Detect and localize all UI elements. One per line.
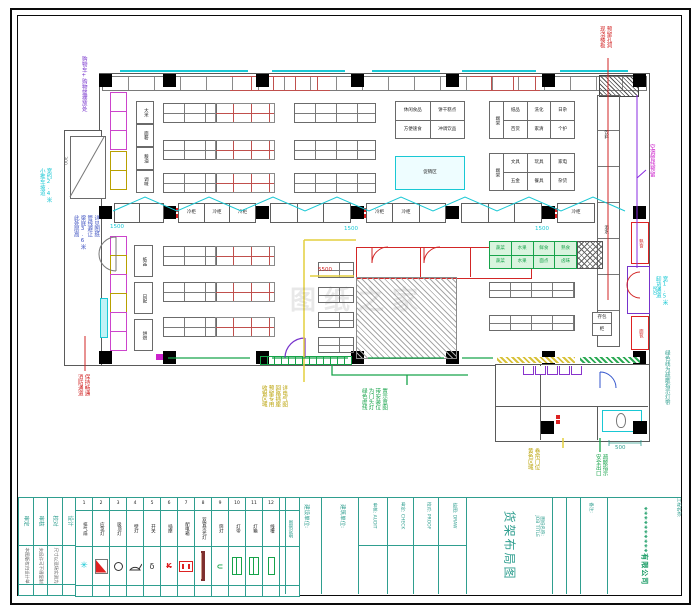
approval-label: 审核 [37, 516, 43, 527]
legend-name: 灯箱 [252, 524, 257, 533]
annotation-col: 收银区域 [260, 385, 266, 407]
annotation-cashier: 收银区域 预留专用 回路插座 详电气图 [260, 385, 286, 407]
dim-text: 1500 [535, 226, 549, 232]
titleblock-col: 建筑单位: [321, 497, 359, 594]
legend-name: 插座 [167, 524, 172, 533]
titleblock-divider [566, 497, 567, 594]
annotation-col: 消防通道 [76, 374, 82, 396]
annotation-ac: 空调管线预留 [648, 144, 654, 177]
legend-name: 开关 [150, 524, 155, 533]
annotation-col: 卸货通道 [654, 276, 660, 305]
annotation-col: 详电气图 [280, 385, 286, 407]
legend-index: 8 [202, 501, 205, 506]
purple-door-swing [285, 338, 305, 358]
annotation-ramp: 小推车坡道 宽约2.4米 [38, 168, 51, 203]
red-leader-lines [85, 58, 608, 371]
annotation-col: 置示意图 [380, 388, 386, 410]
annotation-col: 黄色区域 [526, 448, 532, 470]
jobtitle-label-cn: 图纸名称: [539, 516, 544, 536]
titleblock-company: **********有限公司 [607, 497, 681, 594]
watermark: 图纸之家 [290, 280, 510, 317]
drawing-sheet: 大米 面粉 粮油 调味 休闲食品 饼干糕点 方便速食 冲调饮品 促销区 端架 纸… [0, 0, 700, 616]
cyan-light-zigzag [113, 197, 625, 211]
downlight-icon: ⊂ [217, 562, 224, 571]
legend-index: 3 [117, 501, 120, 506]
distribution-box-icon [179, 561, 193, 572]
jobtitle-header: 图纸名称:JOB TITLE [528, 500, 550, 552]
titleblock-col-label: 建设单位: [303, 504, 309, 528]
annotation-col: 小推车坡道 [38, 168, 44, 203]
drawing-title: 货架布局图 [501, 510, 518, 580]
legend-index: 9 [219, 501, 222, 506]
purple-riser-line [637, 95, 646, 268]
wall-lamp-icon [128, 560, 142, 572]
legend-index: 6 [168, 501, 171, 506]
emergency-light-icon [95, 559, 108, 574]
legend-index: 4 [134, 501, 137, 506]
annotation-col: 详见图纸 [92, 215, 98, 250]
approval-label: 校对 [52, 516, 58, 527]
socket-icon: K [166, 562, 171, 570]
note-label: 备注: [588, 502, 593, 513]
legend-name: 排气扇 [82, 522, 87, 536]
legend-name: 双管荧光灯 [201, 517, 206, 540]
dim-text: 1500 [110, 224, 124, 230]
annotation-col: 卷帘门位 [533, 448, 539, 470]
legend-index: 7 [185, 501, 188, 506]
legend-index: 5 [151, 501, 154, 506]
titleblock-col-label: 绘图: DRAW [451, 503, 456, 529]
legend-index: 11 [251, 501, 257, 506]
titleblock-note: 尺寸以现场实测为准 [52, 548, 57, 582]
annotation-col: 保持畅通 [83, 374, 89, 396]
annotation-col: 现浇楼板 [598, 26, 604, 48]
annotation-evac: 绿色线为疏散指示灯带 [663, 350, 669, 405]
annotation-col: 疏散指示 [601, 454, 607, 476]
annotation-doorhead: 绿色虚线 为门头灯 带安装位 置示意图 [360, 388, 386, 410]
annotation-col: 带安装位 [374, 388, 380, 410]
blue-door-swing [600, 372, 616, 388]
legend-name: 线槽 [269, 524, 274, 533]
titleblock-col: 建设单位: [285, 497, 322, 594]
annotation-col: 此处层高 [72, 215, 78, 250]
entry-doors-and-ramp [70, 137, 116, 271]
jobtitle-label: 图纸名称:JOB TITLE [534, 515, 544, 537]
dim-text: 500 [615, 445, 626, 451]
annotation-fire: 消防通道 保持畅通 [76, 374, 89, 396]
legend-index: 1 [83, 501, 86, 506]
legend-name: 灯带 [235, 524, 240, 533]
annotation-col: 梁底3.6米 [79, 215, 85, 250]
titleblock-note: 本图版权归设计单位所有 [23, 548, 28, 582]
titleblock-col-label: 校对: PROOF [425, 502, 430, 529]
legend-name: 筒灯 [218, 524, 223, 533]
legend-name: 壁灯 [133, 524, 138, 533]
annotation-col: 安全出口 [594, 454, 600, 476]
company-name: **********有限公司 [639, 506, 649, 585]
jobtitle-label-en: JOB TITLE [534, 515, 539, 537]
legend-index: 2 [100, 501, 103, 506]
annotation-col: 为门头灯 [367, 388, 373, 410]
fan-icon: ✳ [80, 561, 88, 571]
dim-text: 5500 [318, 267, 332, 273]
annotation-col: 回路插座 [274, 385, 280, 407]
annotation-col: 管线避让 [86, 215, 92, 250]
titleblock-divider [552, 497, 553, 594]
legend-name: 配电箱 [184, 522, 189, 536]
legend-table: 1 2 3 4 5 6 7 8 9 10 11 12 排气扇 应急灯 吸顶灯 壁… [75, 497, 300, 597]
legend-name: 应急灯 [99, 522, 104, 536]
annotation-slab: 现浇楼板 预留孔洞 [598, 26, 611, 48]
light-strip-icon [232, 557, 242, 575]
annotation-exit: 安全出口 疏散指示 [594, 454, 607, 476]
titleblock-split-line [358, 545, 466, 546]
annotation-col: 宽约2.4米 [45, 168, 51, 203]
switch-icon: δ [150, 562, 155, 571]
titleblock-col-label: 审核: AUDIT [371, 503, 376, 529]
fluorescent-icon [201, 551, 205, 581]
approval-label: 审定 [23, 516, 29, 527]
light-box-icon [249, 557, 259, 575]
annotation-shutter: 黄色区域 卷帘门位 [526, 448, 539, 470]
legend-index: 10 [234, 501, 240, 506]
annotation-cart: 购物车+购物篮摆放处 [80, 56, 86, 112]
wire-duct-icon [268, 557, 275, 575]
annotation-height: 此处层高 梁底3.6米 管线避让 详见图纸 [72, 215, 98, 250]
annotation-col: 预留孔洞 [605, 26, 611, 48]
titleblock-col-label: 审定: CHECK [399, 502, 404, 529]
legend-name: 吸顶灯 [116, 522, 121, 536]
dim-text: 300 [62, 156, 67, 165]
approval-label: 设计 [66, 516, 72, 527]
dim-text: 1500 [344, 226, 358, 232]
annotation-unload: 卸货通道 宽1.5米 [654, 276, 667, 305]
titleblock-approvals: 审定 审核 校对 设计 本图版权归设计单位所有 未经许可不得复制翻印 尺寸以现场… [18, 497, 77, 596]
annotation-col: 预留专用 [267, 385, 273, 407]
annotation-col: 绿色虚线 [360, 388, 366, 410]
ceiling-lamp-icon [114, 562, 123, 571]
annotation-col: 宽1.5米 [661, 276, 667, 305]
titleblock-note: 未经许可不得复制翻印 [38, 548, 43, 582]
yellow-circuit-lines [304, 240, 563, 448]
legend-index: 12 [268, 501, 274, 506]
titleblock-col-label: 建筑单位: [339, 504, 345, 528]
project-label: 工程名称: [675, 498, 680, 518]
titleblock-divider [580, 497, 581, 594]
